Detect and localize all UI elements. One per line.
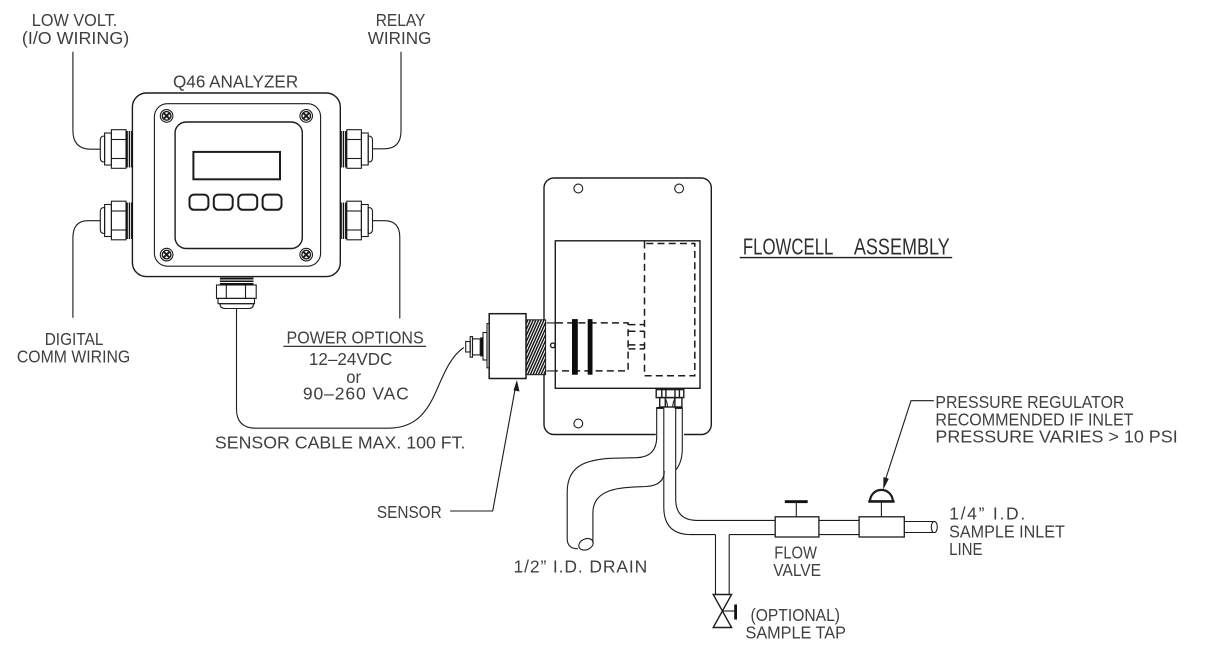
svg-text:VALVE: VALVE [773,560,821,580]
svg-text:RELAY: RELAY [376,10,426,30]
svg-text:(I/O WIRING): (I/O WIRING) [22,28,129,48]
svg-text:ASSEMBLY: ASSEMBLY [854,233,950,259]
svg-text:LINE: LINE [949,539,983,559]
svg-text:POWER OPTIONS: POWER OPTIONS [287,328,424,348]
svg-text:SENSOR: SENSOR [377,502,442,522]
svg-text:SENSOR CABLE MAX. 100 FT.: SENSOR CABLE MAX. 100 FT. [215,433,466,453]
svg-text:WIRING: WIRING [368,28,432,48]
svg-text:PRESSURE VARIES > 10 PSI: PRESSURE VARIES > 10 PSI [935,426,1177,446]
svg-text:SAMPLE TAP: SAMPLE TAP [746,623,846,643]
svg-text:90–260 VAC: 90–260 VAC [303,383,409,403]
svg-text:Q46 ANALYZER: Q46 ANALYZER [173,72,298,92]
svg-text:COMM WIRING: COMM WIRING [17,347,130,367]
svg-text:FLOWCELL: FLOWCELL [743,233,834,259]
svg-text:LOW VOLT.: LOW VOLT. [32,10,118,30]
svg-text:1/2” I.D. DRAIN: 1/2” I.D. DRAIN [514,557,648,577]
